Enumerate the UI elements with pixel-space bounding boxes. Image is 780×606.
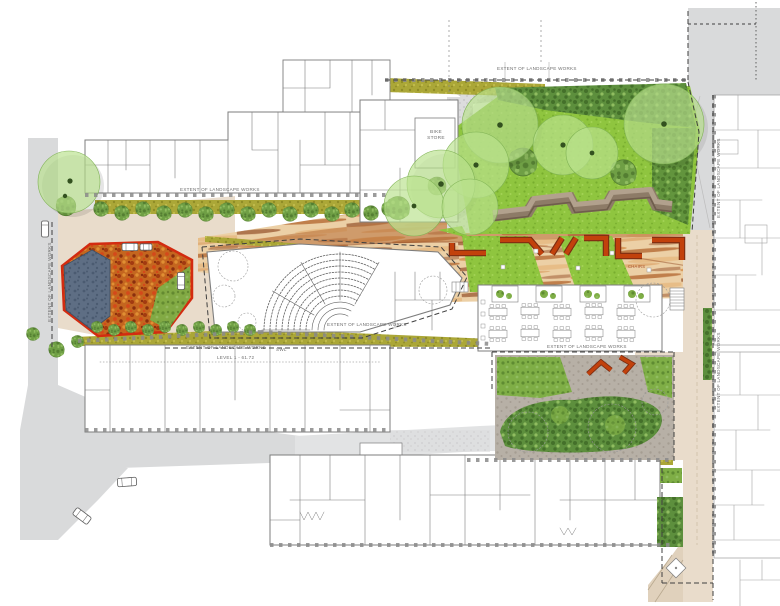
parked-car xyxy=(140,244,152,250)
label-swl: SWL xyxy=(276,347,287,353)
label-extent-of-works-east-upper: EXTENT OF LANDSCAPE WORKS xyxy=(716,138,722,218)
building-bottom-right xyxy=(714,352,780,606)
label-extent-of-works-central: EXTENT OF LANDSCAPE WORKS xyxy=(327,322,407,328)
parked-car xyxy=(42,221,49,237)
label-extent-of-works-northwest: EXTENT OF LANDSCAPE WORKS xyxy=(180,187,260,193)
street-stipple xyxy=(390,430,490,452)
parked-car xyxy=(117,477,137,487)
label-extent-of-works-east-lower: EXTENT OF LANDSCAPE WORKS xyxy=(716,332,722,412)
label-extent-of-works-southwest: EXTENT OF LANDSCAPE WORKS xyxy=(186,345,266,351)
stair-hatch xyxy=(670,288,684,310)
parked-car xyxy=(122,243,138,250)
label-extent-of-works-west: EXTENT OF LANDSCAPE WORKS xyxy=(47,242,53,322)
site-plan-drawing xyxy=(0,0,780,606)
red-garden xyxy=(62,242,192,336)
building-top-left xyxy=(85,60,390,193)
building-central xyxy=(207,244,468,332)
label-extent-of-works-south: EXTENT OF LANDSCAPE WORKS xyxy=(547,344,627,350)
east-hedge-strip xyxy=(703,308,712,380)
label-extent-of-works-north: EXTENT OF LANDSCAPE WORKS xyxy=(497,66,577,72)
courtyard-planting-nw xyxy=(497,357,572,398)
building-tables xyxy=(478,285,684,351)
building-top-right xyxy=(714,95,780,345)
parked-car xyxy=(177,273,184,290)
label-bike-store: BIKE STORE xyxy=(423,130,449,142)
label-level-datum: LEVEL 1 - 61.72 xyxy=(217,355,254,361)
label-chairs-note: CHAIRS xyxy=(628,264,645,269)
site-plan: EXTENT OF LANDSCAPE WORKS EXTENT OF LAND… xyxy=(0,0,780,606)
road-branch xyxy=(28,455,128,540)
right-path xyxy=(683,230,713,602)
